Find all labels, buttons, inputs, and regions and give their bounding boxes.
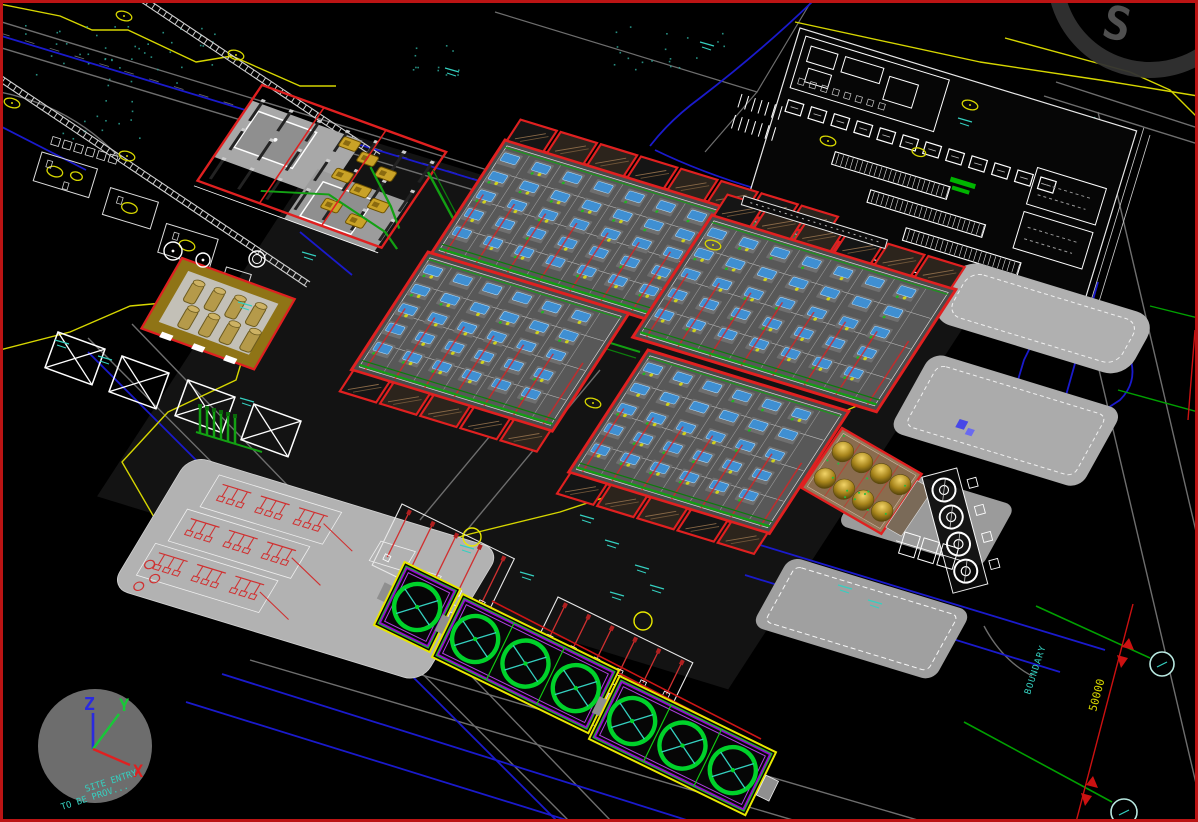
grid-bubble bbox=[1111, 799, 1137, 822]
pad-southeast[interactable] bbox=[751, 556, 971, 681]
y-axis-label: Y bbox=[119, 696, 130, 716]
boundary-label: BOUNDARY bbox=[1023, 644, 1048, 696]
z-axis-label: Z bbox=[84, 694, 95, 715]
pad-east[interactable] bbox=[888, 352, 1123, 489]
navigation-gizmo[interactable]: Z Y X SITE ENTRY TO BE PROV... bbox=[38, 689, 152, 813]
cad-viewport[interactable]: 50000 BOUNDARY Z Y X SITE ENTRY TO BE PR… bbox=[0, 0, 1198, 822]
watermark-letter: S bbox=[1098, 0, 1137, 53]
watermark: S bbox=[1055, 0, 1198, 70]
dimension-label: 50000 bbox=[1086, 677, 1107, 712]
cooling-tower-bank-b[interactable] bbox=[581, 672, 790, 822]
